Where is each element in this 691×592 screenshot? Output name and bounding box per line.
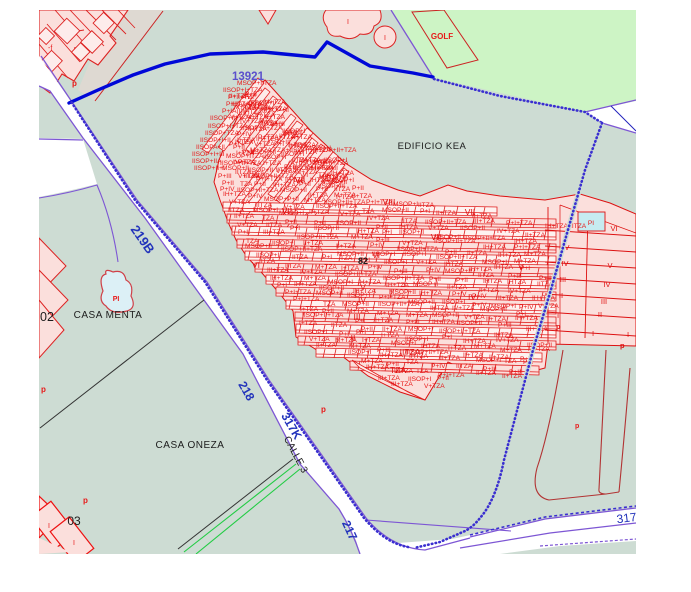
svg-text:II+TZA: II+TZA <box>447 284 468 291</box>
svg-text:P+II: P+II <box>242 94 254 101</box>
svg-text:VIII: VIII <box>383 197 396 207</box>
svg-text:P+II: P+II <box>437 375 449 382</box>
svg-text:III: III <box>353 312 360 322</box>
svg-text:II: II <box>351 333 356 343</box>
svg-text:IH+TZA: IH+TZA <box>515 315 538 322</box>
svg-text:IH+TZA: IH+TZA <box>545 223 568 230</box>
svg-text:IH+TZA: IH+TZA <box>270 275 293 282</box>
svg-text:I+TZA: I+TZA <box>263 160 282 167</box>
svg-text:V: V <box>607 261 612 270</box>
svg-text:IV+TZA: IV+TZA <box>452 305 475 312</box>
svg-text:IISOP+II+TZA: IISOP+II+TZA <box>302 312 344 319</box>
svg-text:TZA: TZA <box>390 365 406 375</box>
svg-text:P+III: P+III <box>394 268 408 275</box>
svg-text:P+I+TZA: P+I+TZA <box>514 244 541 251</box>
svg-text:IV+TZA: IV+TZA <box>497 228 520 235</box>
svg-text:TZA: TZA <box>416 368 429 375</box>
svg-text:V: V <box>518 262 524 272</box>
svg-text:IV+TZA: IV+TZA <box>496 337 519 344</box>
svg-text:P+III: P+III <box>218 173 232 180</box>
svg-text:II+TZA: II+TZA <box>502 373 523 380</box>
svg-text:IHTZA: IHTZA <box>507 279 527 286</box>
svg-text:I+TZA: I+TZA <box>375 317 394 324</box>
svg-text:TZA: TZA <box>262 215 275 222</box>
svg-text:P+IV: P+IV <box>431 363 446 370</box>
svg-text:II+TZA: II+TZA <box>336 243 357 250</box>
svg-text:GOLF: GOLF <box>431 32 453 41</box>
svg-text:TZA: TZA <box>504 358 517 365</box>
svg-text:MSOP+I: MSOP+I <box>391 340 416 347</box>
svg-text:03: 03 <box>67 514 81 528</box>
svg-text:V+TZA: V+TZA <box>230 114 251 121</box>
svg-text:MSOP+I: MSOP+I <box>408 326 433 333</box>
svg-text:CASA MENTA: CASA MENTA <box>74 310 143 321</box>
svg-text:P+IV: P+IV <box>452 291 467 298</box>
svg-text:TZA: TZA <box>340 255 353 262</box>
svg-text:MSOP+II: MSOP+II <box>382 207 409 214</box>
svg-text:IITZA: IITZA <box>570 223 587 230</box>
svg-text:IH+TZA: IH+TZA <box>294 281 317 288</box>
svg-text:TZA: TZA <box>362 208 375 215</box>
svg-text:p: p <box>321 405 326 414</box>
svg-text:p: p <box>620 341 625 350</box>
svg-text:IHTZA: IHTZA <box>494 264 514 271</box>
svg-text:IV+TZA: IV+TZA <box>338 211 361 218</box>
svg-text:EDIFICIO KEA: EDIFICIO KEA <box>398 141 467 152</box>
svg-text:IH+TZA: IH+TZA <box>325 173 348 180</box>
svg-text:IV: IV <box>358 295 366 305</box>
svg-text:IHTZA: IHTZA <box>444 261 464 268</box>
svg-text:V+TZA: V+TZA <box>416 259 437 266</box>
svg-text:P+I+TZA: P+I+TZA <box>506 220 533 227</box>
svg-text:I: I <box>73 540 75 547</box>
svg-text:IHTZA: IHTZA <box>483 278 503 285</box>
svg-text:p: p <box>83 496 88 505</box>
svg-text:IISOP+II+TZA: IISOP+II+TZA <box>315 147 357 154</box>
svg-text:MSOP+II: MSOP+II <box>432 312 459 319</box>
svg-text:III+TZA: III+TZA <box>263 229 285 236</box>
svg-text:IISOP+II+TZA: IISOP+II+TZA <box>378 301 420 308</box>
svg-text:IISOP+II+TZA: IISOP+II+TZA <box>293 165 335 172</box>
svg-text:IH+TZA: IH+TZA <box>419 290 442 297</box>
svg-text:II+TZA: II+TZA <box>234 213 255 220</box>
svg-text:CASA ONEZA: CASA ONEZA <box>156 440 225 451</box>
svg-text:p: p <box>41 385 46 394</box>
svg-text:II+TZA: II+TZA <box>309 209 330 216</box>
svg-text:P+IV: P+IV <box>370 242 385 249</box>
svg-text:I: I <box>592 329 594 338</box>
svg-text:p: p <box>72 79 77 88</box>
svg-text:VII: VII <box>295 175 305 185</box>
svg-text:II+TZA: II+TZA <box>255 112 276 119</box>
svg-text:IITZA: IITZA <box>276 167 293 174</box>
svg-text:IISOP+II: IISOP+II <box>322 179 347 186</box>
svg-text:MSOP+II: MSOP+II <box>445 268 472 275</box>
svg-text:IV: IV <box>468 292 476 302</box>
svg-text:M+TZA: M+TZA <box>500 347 522 354</box>
svg-text:IITZA: IITZA <box>266 222 283 229</box>
svg-text:IISOP+I+III: IISOP+I+III <box>192 151 225 158</box>
svg-text:MSOP+I: MSOP+I <box>476 357 501 364</box>
svg-text:I: I <box>48 523 50 530</box>
svg-text:IITZA: IITZA <box>456 363 473 370</box>
svg-text:IV: IV <box>603 280 610 289</box>
svg-text:I+TZA: I+TZA <box>381 332 400 339</box>
svg-text:IISOP+IIA: IISOP+IIA <box>192 158 222 165</box>
svg-text:P+II: P+II <box>287 196 299 203</box>
svg-text:MSOP+I: MSOP+I <box>253 207 278 214</box>
svg-text:P+II: P+II <box>252 171 264 178</box>
svg-text:13921: 13921 <box>232 71 265 83</box>
svg-text:I: I <box>557 311 559 320</box>
svg-text:P+I: P+I <box>290 225 300 232</box>
svg-text:M+TZA: M+TZA <box>474 343 496 350</box>
svg-text:IH+TZA: IH+TZA <box>386 282 409 289</box>
svg-text:II+TZA: II+TZA <box>476 370 497 377</box>
svg-text:P+III: P+III <box>498 322 512 329</box>
svg-text:MSOP+II: MSOP+II <box>280 187 307 194</box>
svg-text:IITZA: IITZA <box>235 169 252 176</box>
svg-text:IV: IV <box>561 259 568 268</box>
svg-text:VII: VII <box>431 232 441 242</box>
svg-text:V+TZA: V+TZA <box>237 222 258 229</box>
svg-text:V+TZA: V+TZA <box>229 199 250 206</box>
svg-text:P+I: P+I <box>356 329 366 336</box>
svg-text:317: 317 <box>616 510 638 526</box>
svg-text:IISOP+II+TZA: IISOP+II+TZA <box>335 271 377 278</box>
svg-text:P+II: P+II <box>238 229 250 236</box>
svg-text:I: I <box>627 330 629 339</box>
svg-text:III+TZA: III+TZA <box>267 267 289 274</box>
svg-text:IV+TZA: IV+TZA <box>367 215 390 222</box>
svg-text:II+TZA: II+TZA <box>498 295 519 302</box>
svg-text:02: 02 <box>40 310 54 324</box>
svg-text:M+TZA: M+TZA <box>406 312 428 319</box>
svg-text:P+I+TZA: P+I+TZA <box>293 296 320 303</box>
svg-text:IISOP+II: IISOP+II <box>399 229 424 236</box>
svg-text:P+I: P+I <box>322 254 332 261</box>
svg-text:p: p <box>575 423 579 430</box>
svg-text:IV+TZA: IV+TZA <box>508 288 531 295</box>
svg-text:IH+TZA: IH+TZA <box>432 319 455 326</box>
svg-text:III: III <box>601 297 607 306</box>
svg-text:II+TZA: II+TZA <box>316 342 337 349</box>
svg-text:IITZA: IITZA <box>259 258 276 265</box>
svg-text:I+TZA: I+TZA <box>448 345 467 352</box>
svg-text:IH+TZA: IH+TZA <box>366 364 389 371</box>
svg-text:IH+TZA: IH+TZA <box>223 191 246 198</box>
svg-text:P+I+TZA: P+I+TZA <box>285 289 312 296</box>
svg-text:PI: PI <box>113 296 120 303</box>
svg-text:M+TZA: M+TZA <box>524 251 546 258</box>
svg-text:MSOP+II: MSOP+II <box>258 121 285 128</box>
svg-text:IISOP+I: IISOP+I <box>384 259 407 266</box>
svg-text:IISOP+I+II: IISOP+I+II <box>200 137 231 144</box>
svg-text:IISOP+II: IISOP+II <box>314 225 339 232</box>
svg-text:VI: VI <box>372 250 380 260</box>
svg-text:IH+TZA: IH+TZA <box>532 295 555 302</box>
svg-text:III+TZA: III+TZA <box>473 218 495 225</box>
svg-text:V: V <box>360 282 366 292</box>
svg-text:P+I+TZA: P+I+TZA <box>379 294 406 301</box>
svg-text:VI: VI <box>252 260 260 270</box>
svg-text:IISOP+TZA: IISOP+TZA <box>205 130 239 137</box>
svg-text:M+TZA: M+TZA <box>377 310 399 317</box>
svg-text:IISOP+II: IISOP+II <box>460 225 485 232</box>
svg-text:V+TZA: V+TZA <box>428 225 449 232</box>
svg-text:P+III: P+III <box>406 319 420 326</box>
svg-text:P+I: P+I <box>277 282 287 289</box>
svg-text:P+II: P+II <box>352 185 364 192</box>
svg-text:P+I: P+I <box>382 229 392 236</box>
svg-text:IISOP+I: IISOP+I <box>403 251 426 258</box>
svg-text:MSOP+II: MSOP+II <box>480 306 507 313</box>
svg-text:PI: PI <box>588 220 594 227</box>
svg-text:IITZA: IITZA <box>400 347 421 357</box>
svg-text:IISOP+II+TZA: IISOP+II+TZA <box>281 246 323 253</box>
svg-text:V+TZA: V+TZA <box>424 383 445 390</box>
svg-text:82: 82 <box>358 256 368 266</box>
svg-text:TZA: TZA <box>323 301 336 308</box>
svg-text:MSOP+I: MSOP+I <box>413 281 438 288</box>
svg-text:II: II <box>559 291 563 300</box>
svg-text:IHTZA: IHTZA <box>231 101 251 108</box>
svg-text:IITZA: IITZA <box>292 254 309 261</box>
svg-text:P+IV: P+IV <box>426 267 441 274</box>
svg-text:MSOP+II: MSOP+II <box>245 243 272 250</box>
svg-text:III+TZA: III+TZA <box>391 381 413 388</box>
svg-text:P+III: P+III <box>277 139 291 146</box>
svg-text:III: III <box>560 275 566 284</box>
svg-text:IISOP+II: IISOP+II <box>457 320 482 327</box>
svg-text:II+TZA: II+TZA <box>436 210 457 217</box>
svg-text:II+TZA: II+TZA <box>292 134 313 141</box>
svg-text:IISOP+II: IISOP+II <box>336 220 361 227</box>
svg-text:I: I <box>384 35 386 42</box>
svg-text:P+IV: P+IV <box>368 264 383 271</box>
svg-text:P+I: P+I <box>442 334 452 341</box>
svg-text:IV+TZA: IV+TZA <box>233 159 256 166</box>
svg-text:IISOP+II+TZA: IISOP+II+TZA <box>436 254 478 261</box>
svg-text:TZA: TZA <box>406 359 419 366</box>
svg-text:P+II: P+II <box>456 277 468 284</box>
svg-text:VII: VII <box>465 207 475 217</box>
svg-text:II+TZA: II+TZA <box>440 355 461 362</box>
svg-text:I+TZA: I+TZA <box>299 320 318 327</box>
svg-text:I: I <box>347 19 349 26</box>
svg-text:P+IV: P+IV <box>248 193 263 200</box>
svg-text:P+I: P+I <box>420 208 430 215</box>
svg-text:-f: -f <box>48 45 52 52</box>
svg-text:IISOPA+II: IISOPA+II <box>196 144 225 151</box>
svg-text:IITZA: IITZA <box>331 322 348 329</box>
svg-text:VI: VI <box>610 224 617 233</box>
svg-text:II: II <box>598 310 602 319</box>
svg-text:IISOP+I: IISOP+I <box>348 349 371 356</box>
svg-text:p: p <box>556 322 561 331</box>
svg-text:IISOP+I: IISOP+I <box>304 329 327 336</box>
svg-text:VII: VII <box>282 206 292 216</box>
svg-text:M+TZA: M+TZA <box>351 234 373 241</box>
svg-text:I+TZA: I+TZA <box>237 137 256 144</box>
svg-text:P+II: P+II <box>249 101 261 108</box>
svg-text:MSOP+II: MSOP+II <box>316 290 343 297</box>
svg-text:P+IV: P+IV <box>519 304 534 311</box>
svg-text:P+II: P+II <box>242 149 254 156</box>
svg-text:IHTZA: IHTZA <box>430 305 450 312</box>
